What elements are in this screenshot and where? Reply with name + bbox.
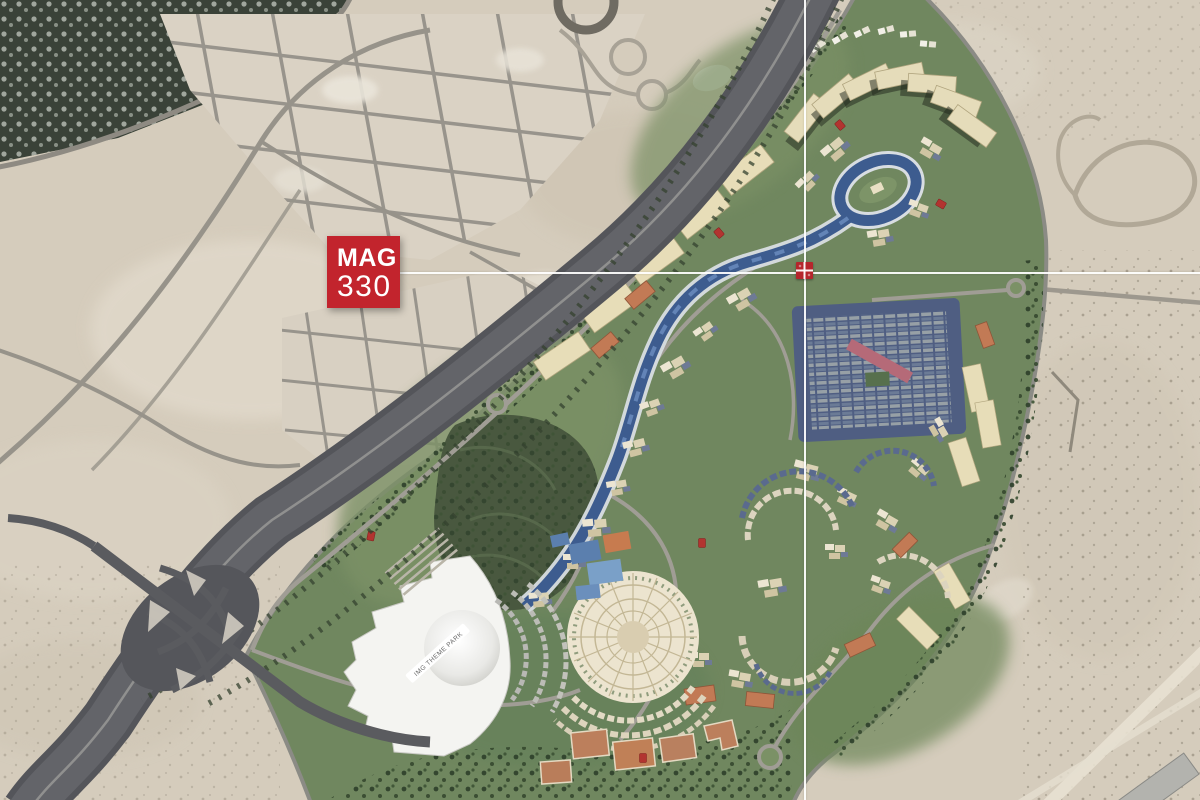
mag-330-label: MAG 330 <box>327 236 400 308</box>
map-canvas: IMG THEME PARK <box>0 0 1200 800</box>
mag-location-marker-icon <box>796 262 813 279</box>
crosshair-vertical-line <box>804 0 806 800</box>
mag-330-label-line1: MAG <box>337 246 400 271</box>
satellite-map-image[interactable]: IMG THEME PARK <box>0 0 1200 800</box>
mag-330-label-line2: 330 <box>337 272 400 302</box>
